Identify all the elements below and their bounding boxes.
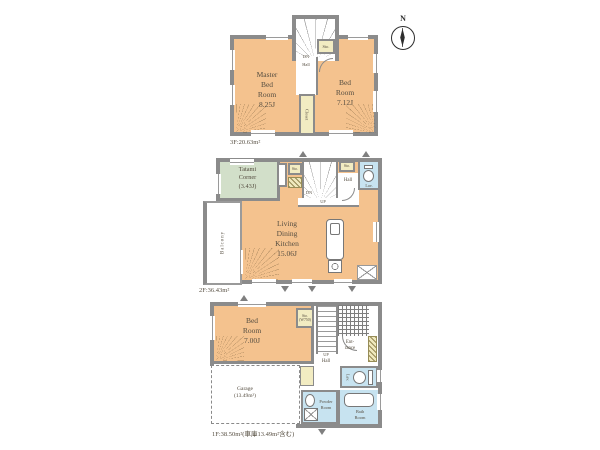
wall bbox=[296, 424, 382, 428]
washbasin-icon bbox=[305, 394, 315, 407]
vent-marker bbox=[348, 286, 356, 292]
toilet-icon bbox=[353, 371, 366, 384]
hall-2f-label: Hall bbox=[339, 178, 357, 184]
bath-room: Bath Room bbox=[338, 390, 378, 424]
master-bedroom-label: Master Bed Room 8.25J bbox=[236, 70, 298, 110]
vent-marker bbox=[281, 286, 289, 292]
stairs-1f bbox=[316, 306, 338, 354]
window bbox=[209, 316, 215, 340]
garage-label: Garage (13.49m²) bbox=[222, 386, 268, 401]
window bbox=[373, 54, 379, 73]
cabinet-2f bbox=[288, 177, 302, 188]
bedroom-1f-label: Bed Room 7.00J bbox=[222, 316, 282, 346]
powder-room-label: Powder Room bbox=[316, 399, 336, 410]
vent-marker bbox=[240, 295, 248, 301]
compass-north-label: N bbox=[395, 14, 411, 25]
stove-icon bbox=[328, 260, 342, 273]
kitchen-counter bbox=[326, 219, 344, 260]
lav-2f-label: Lav. bbox=[360, 183, 378, 189]
bath-room-label: Bath Room bbox=[347, 409, 373, 421]
ldk-label: Living Dining Kitchen 15.06J bbox=[250, 219, 324, 259]
lavatory-2f: Lav. bbox=[358, 162, 378, 190]
window bbox=[229, 85, 235, 105]
window bbox=[251, 130, 275, 136]
area-label-3f: 3F:20.63m² bbox=[230, 139, 310, 148]
storage-3f: Sto. bbox=[317, 39, 335, 54]
refrigerator-space bbox=[357, 265, 377, 280]
closet-3f: Closet bbox=[299, 94, 315, 135]
toilet-tank-icon bbox=[368, 370, 373, 385]
corner-hatch bbox=[346, 104, 376, 133]
window bbox=[329, 130, 353, 136]
window bbox=[230, 159, 254, 165]
window bbox=[377, 370, 383, 382]
dn-3f-label: DN bbox=[296, 54, 316, 60]
powder-room: Powder Room bbox=[301, 390, 338, 424]
window bbox=[348, 34, 368, 40]
bathtub-icon bbox=[344, 393, 374, 407]
lavatory-1f: Lav. bbox=[340, 366, 378, 388]
up-1f-label: UP bbox=[313, 352, 339, 358]
floor-plan: Sto. DN Hall Closet Master Bed Room 8.25… bbox=[0, 0, 600, 450]
sink-icon bbox=[330, 223, 340, 235]
window bbox=[292, 279, 312, 285]
vent-marker bbox=[308, 286, 316, 292]
window bbox=[373, 222, 379, 242]
window bbox=[373, 91, 379, 112]
window bbox=[266, 34, 288, 40]
window bbox=[252, 279, 276, 285]
entrance-label: Ent- rance bbox=[338, 340, 362, 353]
vent-marker bbox=[299, 151, 307, 157]
tatami-corner-label: Tatami Corner (3.43J) bbox=[220, 166, 275, 191]
window bbox=[238, 301, 266, 307]
storage-2f-a: Sto. bbox=[288, 163, 302, 175]
dn-2f-label: DN bbox=[300, 190, 318, 196]
compass bbox=[391, 26, 415, 50]
hall-1f-label: Hall bbox=[316, 359, 336, 365]
storage-1f: Sto. (W750) bbox=[296, 308, 314, 328]
hall-3f-label: Hall bbox=[296, 62, 316, 68]
shoe-cabinet bbox=[368, 336, 377, 362]
storage-2f-b: Sto. bbox=[339, 161, 355, 172]
window bbox=[377, 394, 383, 410]
toilet-icon bbox=[363, 170, 374, 182]
closet-2f bbox=[277, 163, 287, 187]
up-2f-label: UP bbox=[312, 199, 334, 205]
compass-needle-icon bbox=[392, 27, 413, 48]
window bbox=[334, 279, 352, 285]
bedroom-3f-label: Bed Room 7.12J bbox=[318, 78, 372, 108]
balcony-door bbox=[237, 250, 243, 274]
area-label-1f: 1F:38.50m²(車庫13.49m²含む) bbox=[212, 431, 372, 440]
window bbox=[229, 50, 235, 70]
linen-cabinet bbox=[300, 366, 314, 386]
window bbox=[215, 174, 221, 194]
lav-1f-label: Lav. bbox=[345, 370, 351, 385]
toilet-tank-icon bbox=[364, 165, 373, 169]
vent-marker bbox=[362, 151, 370, 157]
entrance-porch bbox=[338, 305, 369, 336]
